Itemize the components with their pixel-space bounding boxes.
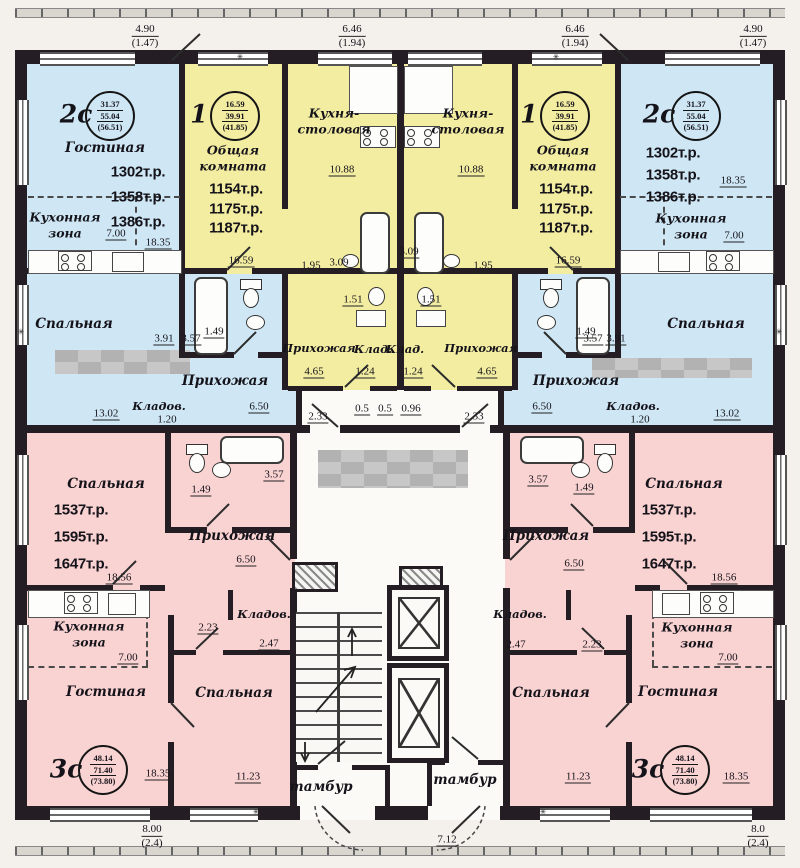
kitchen-zone-boundary bbox=[652, 666, 772, 668]
room-label-storage: Клад. bbox=[386, 342, 424, 356]
window bbox=[198, 52, 268, 66]
room-label-bedroom: Спальная bbox=[67, 476, 144, 492]
sink-icon bbox=[246, 315, 265, 330]
wall bbox=[457, 386, 512, 391]
wall-joint-mark: ✳ bbox=[540, 808, 547, 817]
dim-label: 11.23 bbox=[235, 771, 261, 784]
price-label: 1302т.р. bbox=[646, 145, 701, 162]
dim-label: 3.91 bbox=[605, 333, 626, 346]
room-label-living: Гостиная bbox=[65, 140, 145, 156]
room-label-bedroom2: Спальная bbox=[195, 685, 272, 701]
bathtub-icon bbox=[414, 212, 444, 274]
dim-label: 10.88 bbox=[458, 164, 485, 177]
wall bbox=[604, 650, 632, 655]
vent-shaft bbox=[292, 562, 338, 592]
room-label-bedroom: Спальная bbox=[667, 316, 744, 332]
sink-icon bbox=[212, 462, 231, 478]
room-label-living: Гостиная bbox=[638, 684, 718, 700]
dim-label: 3.91 bbox=[153, 333, 174, 346]
sink-icon bbox=[537, 315, 556, 330]
dim-label: 3.09 bbox=[328, 257, 349, 270]
price-label: 1154т.р. bbox=[539, 181, 593, 198]
price-label: 1647т.р. bbox=[54, 556, 109, 573]
dim-label: 1.95 bbox=[472, 260, 493, 273]
dim-label: 1.49 bbox=[203, 326, 224, 339]
price-label: 1595т.р. bbox=[642, 529, 697, 546]
dim-label: 16.59 bbox=[555, 255, 582, 268]
dim-label: 1.49 bbox=[573, 482, 594, 495]
wall bbox=[573, 268, 621, 274]
window bbox=[775, 625, 787, 700]
window bbox=[775, 455, 787, 545]
wall bbox=[179, 64, 185, 274]
dimension-band bbox=[15, 846, 785, 856]
room-label-bedroom2: Спальная bbox=[512, 685, 589, 701]
dim-label: 18.35 bbox=[720, 175, 747, 188]
wall bbox=[404, 386, 431, 391]
window bbox=[190, 808, 258, 822]
dim-label: 1.51 bbox=[420, 294, 441, 307]
room-label-hall: Прихожая bbox=[189, 528, 275, 544]
dim-label: 1.24 bbox=[354, 366, 375, 379]
window bbox=[40, 52, 135, 66]
dim-label: 1.20 bbox=[156, 414, 177, 427]
watermark-block bbox=[318, 450, 468, 488]
apt-type-1: 1 bbox=[190, 100, 207, 129]
dim-label: 2.47 bbox=[505, 639, 526, 652]
wall bbox=[296, 390, 302, 428]
dim-label: 1.51 bbox=[342, 294, 363, 307]
wall bbox=[179, 268, 227, 274]
room-label-kitchen-dining: Кухня-столовая bbox=[432, 105, 505, 136]
entrance-opening bbox=[428, 806, 500, 820]
price-label: 1175т.р. bbox=[539, 201, 593, 218]
price-label: 1302т.р. bbox=[111, 164, 166, 181]
dim-label: 2.47 bbox=[258, 638, 279, 651]
kitchen-sink-icon bbox=[112, 252, 144, 272]
wall bbox=[282, 274, 288, 390]
dim-label: 18.35 bbox=[723, 771, 750, 784]
wall bbox=[340, 425, 460, 433]
dim-label: 2.33 bbox=[463, 411, 484, 424]
dim-label: 6.50 bbox=[235, 554, 256, 567]
wall bbox=[168, 615, 174, 703]
wall bbox=[290, 433, 297, 559]
price-label: 1537т.р. bbox=[54, 502, 109, 519]
kitchen-sink-icon bbox=[108, 593, 136, 615]
wall bbox=[615, 64, 621, 274]
price-label: 1175т.р. bbox=[209, 201, 263, 218]
bathtub-icon bbox=[220, 436, 284, 464]
wall bbox=[385, 765, 390, 806]
wall bbox=[370, 386, 397, 391]
wall-joint-mark: ✳ bbox=[18, 328, 25, 337]
dim-label: 13.02 bbox=[714, 408, 741, 421]
sink-icon bbox=[571, 462, 590, 478]
dim-label: 18.35 bbox=[145, 768, 172, 781]
stove-icon bbox=[706, 251, 740, 271]
dim-label: 18.56 bbox=[106, 572, 133, 585]
dim-label: 0.5 bbox=[354, 403, 370, 416]
room-label-hall: Прихожая bbox=[533, 373, 619, 389]
dim-label: 11.23 bbox=[565, 771, 591, 784]
price-label: 1647т.р. bbox=[642, 556, 697, 573]
dim-label: 3.57 bbox=[263, 469, 284, 482]
bathtub-icon bbox=[520, 436, 584, 464]
dim-label: 18.56 bbox=[711, 572, 738, 585]
staircase bbox=[296, 612, 382, 762]
dim-label: 2.23 bbox=[197, 622, 218, 635]
dim-label: 4.90(1.47) bbox=[132, 23, 159, 49]
area-badge-2c: 31.3755.04(56.51) bbox=[671, 91, 721, 141]
wall bbox=[288, 386, 343, 391]
dim-label: 6.46(1.94) bbox=[339, 23, 366, 49]
wall-joint-mark: ✳ bbox=[553, 53, 560, 62]
room-label-vestibule: тамбур bbox=[433, 772, 496, 788]
area-badge-3c: 48.1471.40(73.80) bbox=[78, 745, 128, 795]
room-label-kitchen-zone: Кухоннаязона bbox=[30, 209, 101, 240]
apt-type-1: 1 bbox=[520, 100, 537, 129]
price-label: 1386т.р. bbox=[646, 189, 701, 206]
washer-icon bbox=[416, 310, 446, 327]
dim-label: 8.0(2.4) bbox=[747, 823, 768, 849]
room-label-common: Общаякомната bbox=[529, 142, 596, 173]
area-badge-1: 16.5939.91(41.85) bbox=[210, 91, 260, 141]
dim-label: 6.50 bbox=[248, 401, 269, 414]
room-label-hall: Прихожая bbox=[503, 528, 589, 544]
price-label: 1154т.р. bbox=[209, 181, 263, 198]
wall bbox=[168, 650, 196, 655]
price-label: 1358т.р. bbox=[646, 167, 701, 184]
dim-label: 0.96 bbox=[400, 403, 421, 416]
toilet-icon bbox=[243, 288, 259, 308]
wall bbox=[512, 274, 518, 390]
dim-label: 2.23 bbox=[581, 639, 602, 652]
dim-label: 7.00 bbox=[105, 228, 126, 241]
toilet-icon bbox=[189, 453, 205, 473]
dim-label: 1.24 bbox=[402, 366, 423, 379]
kitchen-counter bbox=[28, 250, 182, 274]
dim-label: 0.5 bbox=[377, 403, 393, 416]
wall bbox=[165, 433, 171, 529]
window bbox=[532, 52, 602, 66]
room-label-hall: Прихожая bbox=[182, 373, 268, 389]
dim-label: 3.09 bbox=[398, 246, 419, 259]
room-label-storage: Кладов. bbox=[493, 607, 547, 621]
entrance-opening bbox=[300, 806, 375, 820]
kitchen-zone-boundary bbox=[28, 666, 148, 668]
dim-label: 13.02 bbox=[93, 408, 120, 421]
window bbox=[665, 52, 760, 66]
wall bbox=[223, 650, 295, 655]
floor-plan: ✳ ✳ ✳ ✳ ✳ ✳ 4.90(1.47) bbox=[0, 0, 800, 868]
wall-joint-mark: ✳ bbox=[237, 53, 244, 62]
dim-label: 16.59 bbox=[228, 255, 255, 268]
wall-joint-mark: ✳ bbox=[776, 328, 783, 337]
dim-label: 4.65 bbox=[303, 366, 324, 379]
wall bbox=[512, 268, 548, 274]
wall bbox=[282, 64, 288, 209]
window bbox=[50, 808, 150, 822]
dim-label: 7.00 bbox=[117, 652, 138, 665]
room-label-storage: Кладов. bbox=[132, 399, 186, 413]
toilet-icon bbox=[368, 287, 385, 306]
dim-label: 4.65 bbox=[476, 366, 497, 379]
dim-label: 2.33 bbox=[307, 411, 328, 424]
wall-joint-mark: ✳ bbox=[253, 808, 260, 817]
room-label-hall: Прихожая bbox=[282, 341, 355, 355]
price-label: 1595т.р. bbox=[54, 529, 109, 546]
window bbox=[17, 625, 29, 700]
dim-label: 1.20 bbox=[629, 414, 650, 427]
toilet-icon bbox=[543, 288, 559, 308]
area-badge-1: 16.5939.91(41.85) bbox=[540, 91, 590, 141]
area-badge-3c: 48.1471.40(73.80) bbox=[660, 745, 710, 795]
dim-label: 6.46(1.94) bbox=[562, 23, 589, 49]
room-label-common: Общаякомната bbox=[199, 142, 266, 173]
bathtub-icon bbox=[360, 212, 390, 274]
wall bbox=[566, 590, 571, 620]
wall bbox=[478, 760, 508, 765]
dimension-band bbox=[15, 8, 785, 18]
room-label-bedroom: Спальная bbox=[645, 476, 722, 492]
area-badge-2c: 31.3755.04(56.51) bbox=[85, 91, 135, 141]
room-label-living: Гостиная bbox=[66, 684, 146, 700]
dim-label: 10.88 bbox=[329, 164, 356, 177]
wall bbox=[498, 390, 504, 428]
window bbox=[540, 808, 610, 822]
dim-label: 6.50 bbox=[531, 401, 552, 414]
stove-icon bbox=[64, 592, 98, 614]
price-label: 1537т.р. bbox=[642, 502, 697, 519]
wall bbox=[593, 527, 635, 533]
toilet-icon bbox=[597, 453, 613, 473]
window bbox=[318, 52, 392, 66]
room-label-kitchen-zone: Кухоннаязона bbox=[662, 619, 733, 650]
room-label-vestibule: тамбур bbox=[289, 779, 352, 795]
dim-label: 7.00 bbox=[717, 652, 738, 665]
window bbox=[17, 100, 29, 185]
room-label-storage: Кладов. bbox=[237, 607, 291, 621]
price-label: 1187т.р. bbox=[209, 220, 263, 237]
window bbox=[408, 52, 482, 66]
dim-label: 1.95 bbox=[300, 260, 321, 273]
dim-label: 7.00 bbox=[723, 230, 744, 243]
stove-icon bbox=[700, 592, 734, 614]
room-label-storage: Кладов. bbox=[606, 399, 660, 413]
dim-label: 1.49 bbox=[190, 484, 211, 497]
room-label-bedroom: Спальная bbox=[35, 316, 112, 332]
washer-icon bbox=[356, 310, 386, 327]
window bbox=[650, 808, 752, 822]
price-label: 1358т.р. bbox=[111, 189, 166, 206]
elevator-cab bbox=[398, 597, 440, 649]
dim-label: 18.35 bbox=[145, 237, 172, 250]
dim-label: 8.00(2.4) bbox=[141, 823, 162, 849]
elevator-cab bbox=[398, 678, 440, 748]
room-label-kitchen-zone: Кухоннаязона bbox=[656, 210, 727, 241]
dim-label: 3.57 bbox=[180, 333, 201, 346]
sink-icon bbox=[443, 254, 460, 268]
wall bbox=[290, 765, 318, 770]
kitchen-sink-icon bbox=[658, 252, 690, 272]
room-label-hall: Прихожая bbox=[444, 341, 517, 355]
room-label-kitchen-dining: Кухня-столовая bbox=[298, 105, 371, 136]
kitchen-counter bbox=[620, 250, 774, 274]
wall bbox=[252, 268, 288, 274]
dim-label: 3.57 bbox=[527, 474, 548, 487]
wall bbox=[427, 760, 432, 806]
wall bbox=[629, 433, 635, 529]
price-label: 1187т.р. bbox=[539, 220, 593, 237]
stove-icon bbox=[58, 251, 92, 271]
dim-label: 1.49 bbox=[575, 326, 596, 339]
dim-label: 6.50 bbox=[563, 558, 584, 571]
wall bbox=[512, 64, 518, 209]
wall bbox=[228, 590, 233, 620]
wall bbox=[626, 615, 632, 703]
dim-label: 4.90(1.47) bbox=[740, 23, 767, 49]
window bbox=[17, 455, 29, 545]
room-label-kitchen-zone: Кухоннаязона bbox=[54, 618, 125, 649]
dim-label: 7.12 bbox=[436, 834, 457, 847]
watermark-block bbox=[55, 350, 190, 374]
kitchen-sink-icon bbox=[662, 593, 690, 615]
window bbox=[775, 100, 787, 185]
